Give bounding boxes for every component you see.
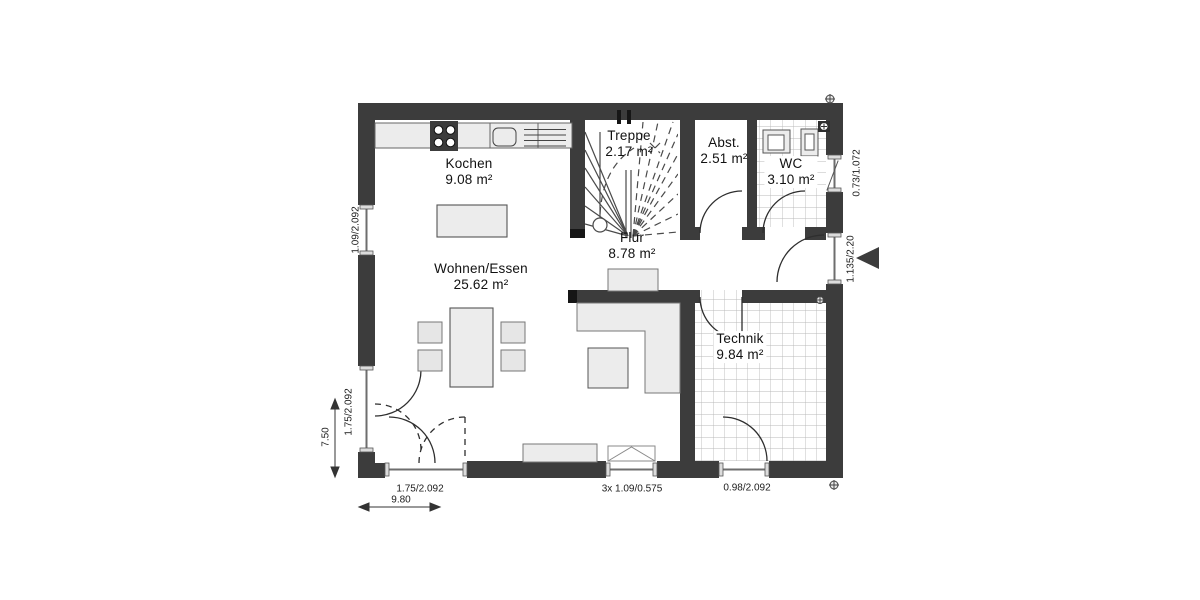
door-left-jamb-top	[360, 366, 373, 370]
dimension-bottom-door: 1.75/2.092	[396, 484, 443, 495]
door-technik-exterior	[719, 461, 769, 478]
wall-right-lower	[826, 282, 843, 461]
stair-newel-circle	[593, 218, 607, 232]
room-name: Kochen	[445, 156, 492, 172]
window-tilt-symbol	[608, 447, 655, 461]
door-left-jamb-bottom	[360, 448, 373, 452]
flur-living-wall-cap	[568, 290, 577, 303]
chimney-tick-1	[617, 110, 621, 124]
dimension-left-door: 1.75/2.092	[344, 388, 355, 435]
vent-icon	[818, 121, 830, 132]
window-bottom-jamb-left	[606, 463, 610, 476]
room-area: 2.51 m²	[700, 151, 747, 167]
room-label-technik: Technik 9.84 m²	[713, 331, 766, 363]
dimension-line-vertical-750	[331, 399, 339, 477]
chair-4	[501, 350, 525, 371]
room-label-kochen: Kochen 9.08 m²	[445, 156, 492, 188]
burner-3	[434, 138, 443, 147]
room-label-treppe: Treppe 2.17 m²	[605, 128, 652, 160]
wall-top	[358, 103, 843, 120]
room-label-wohnen-essen: Wohnen/Essen 25.62 m²	[434, 261, 528, 293]
toilet-icon	[763, 130, 790, 153]
dimension-left-window: 1.09/2.092	[351, 206, 362, 253]
chair-2	[418, 350, 442, 371]
door-left-terrace	[358, 366, 375, 452]
wall-left-lower	[358, 450, 375, 478]
toilet-bowl	[768, 135, 784, 150]
lowboard	[523, 444, 597, 462]
door-arc-left-dashed	[375, 404, 421, 450]
window-wc-jamb-top	[828, 155, 841, 159]
room-name: Technik	[716, 331, 763, 347]
washbasin-icon	[801, 129, 818, 156]
stair-wall-left-cap	[570, 229, 585, 238]
room-name: Flur	[608, 230, 655, 246]
stove-body	[430, 121, 458, 151]
technik-left-wall	[680, 303, 695, 461]
burner-1	[434, 126, 443, 135]
room-label-wc: WC 3.10 m²	[764, 156, 817, 188]
window-bottom-jamb-right	[653, 463, 657, 476]
window-left-jamb-bottom	[360, 251, 373, 255]
door-technik-jamb-left	[719, 463, 723, 476]
abst-wc-wall	[747, 120, 757, 230]
stair-wall-right	[680, 120, 695, 238]
room-area: 3.10 m²	[767, 172, 814, 188]
dimension-bottom-technik-door: 0.98/2.092	[723, 483, 770, 494]
door-entrance-jamb-bottom	[828, 280, 841, 284]
coffee-table	[588, 348, 628, 388]
dining-table	[450, 308, 493, 387]
survey-marker-icon-technik	[816, 296, 824, 304]
room-area: 8.78 m²	[608, 246, 655, 262]
entrance-arrow-icon	[856, 247, 879, 269]
window-wc-jamb-bottom	[828, 188, 841, 192]
wall-bottom-2	[655, 461, 721, 478]
burner-2	[446, 126, 455, 135]
window-bottom-triple	[606, 446, 657, 478]
technik-top-wall	[742, 290, 826, 303]
floor-plan-canvas: Kochen 9.08 m² Wohnen/Essen 25.62 m² Tre…	[0, 0, 1200, 600]
door-arc-left-terrace	[375, 370, 421, 416]
flur-top-wall-1	[680, 227, 700, 240]
dimension-bottom-total: 9.80	[391, 495, 410, 506]
door-bottom-jamb-left	[385, 463, 389, 476]
room-area: 9.08 m²	[445, 172, 492, 188]
room-label-flur: Flur 8.78 m²	[608, 230, 655, 262]
wall-bottom-3	[767, 461, 843, 478]
room-area: 9.84 m²	[716, 347, 763, 363]
flur-living-wall	[568, 290, 700, 303]
wall-bottom-1	[467, 461, 608, 478]
survey-marker-icon-top-right	[825, 94, 835, 104]
chimney-tick-2	[627, 110, 631, 124]
room-name: Wohnen/Essen	[434, 261, 528, 277]
door-arc-bottom-terrace	[389, 417, 435, 463]
chair-1	[418, 322, 442, 343]
dimension-left-total: 7.50	[321, 427, 332, 446]
dimension-bottom-window: 3x 1.09/0.575	[602, 484, 663, 495]
room-name: Abst.	[700, 135, 747, 151]
chair-3	[501, 322, 525, 343]
room-area: 2.17 m²	[605, 144, 652, 160]
door-entrance	[826, 233, 843, 284]
flur-cabinet	[608, 269, 658, 291]
room-name: WC	[767, 156, 814, 172]
window-wc	[826, 155, 843, 192]
floor-plan-drawing	[0, 0, 1200, 600]
room-name: Treppe	[605, 128, 652, 144]
door-bottom-jamb-right	[463, 463, 467, 476]
flur-top-wall-2	[742, 227, 765, 240]
stove-icon	[430, 121, 458, 151]
dimension-entrance-door: 1.135/2.20	[846, 235, 857, 282]
door-technik-jamb-right	[765, 463, 769, 476]
wall-left-mid	[358, 253, 375, 368]
basin-inner	[805, 134, 814, 150]
wall-left-upper	[358, 120, 375, 207]
door-entrance-jamb-top	[828, 233, 841, 237]
window-tilt-frame	[608, 446, 655, 461]
kitchen-island	[437, 205, 507, 237]
window-left-jamb-top	[360, 205, 373, 209]
door-arc-abst	[700, 191, 742, 233]
survey-marker-icon-bottom-right	[829, 480, 839, 490]
room-area: 25.62 m²	[434, 277, 528, 293]
burner-4	[446, 138, 455, 147]
technik-door-tiles	[700, 290, 742, 303]
room-label-abst: Abst. 2.51 m²	[700, 135, 747, 167]
dimension-wc-window: 0.73/1.072	[852, 149, 863, 196]
door-arc-bottom-dashed	[419, 417, 465, 463]
door-arc-entrance	[777, 235, 824, 282]
door-bottom-terrace	[385, 461, 467, 478]
wall-right-mid	[826, 190, 843, 235]
